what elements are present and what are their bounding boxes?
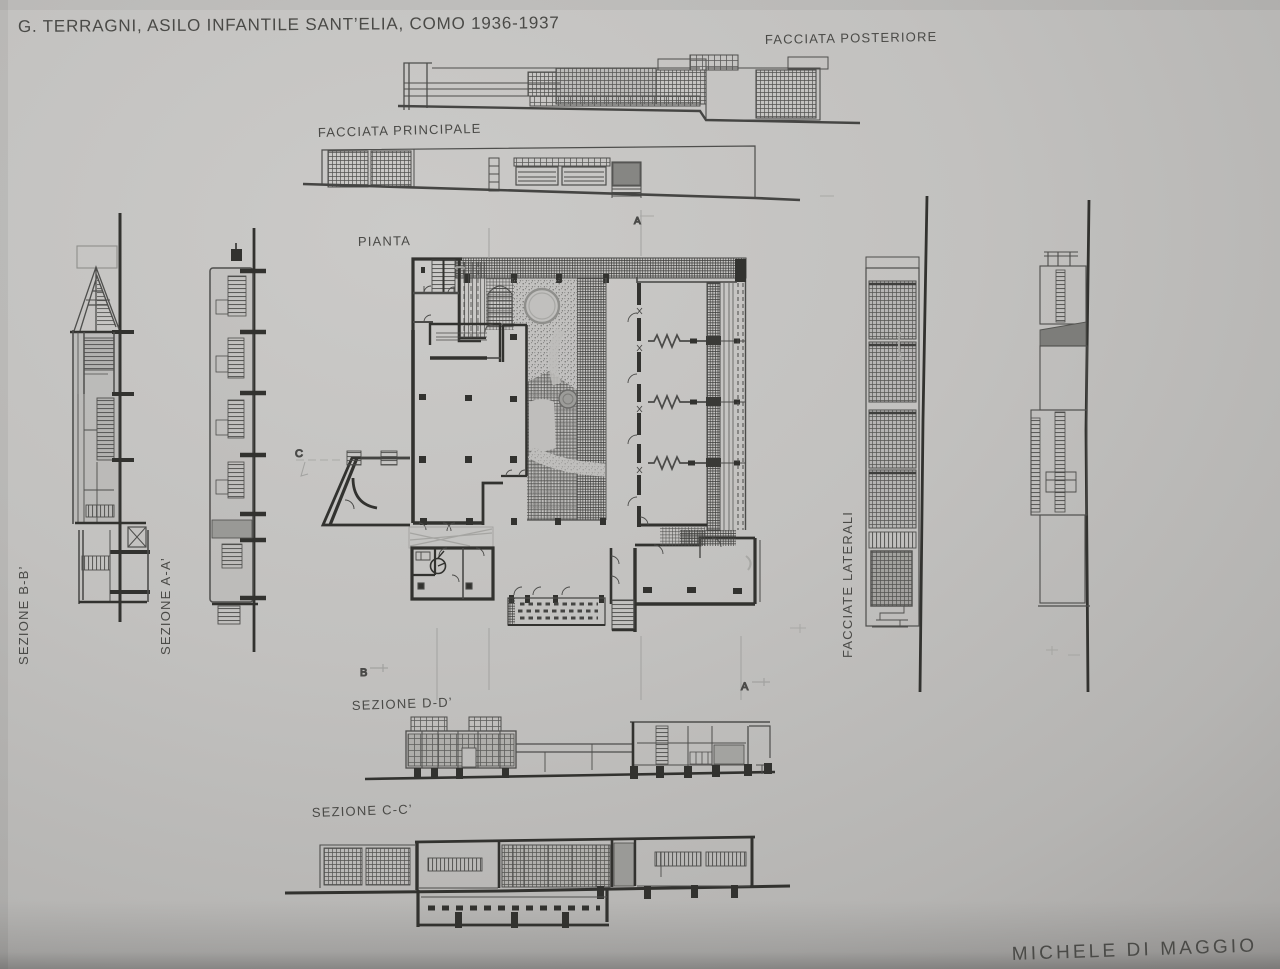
svg-text:A: A xyxy=(741,681,749,693)
svg-text:G. TERRAGNI, ASILO INFANTILE S: G. TERRAGNI, ASILO INFANTILE SANT’ELIA, … xyxy=(18,13,560,36)
svg-text:PIANTA: PIANTA xyxy=(358,233,411,249)
svg-text:SEZIONE A-A’: SEZIONE A-A’ xyxy=(158,557,173,655)
svg-text:FACCIATA POSTERIORE: FACCIATA POSTERIORE xyxy=(765,29,938,47)
svg-text:B: B xyxy=(360,667,367,679)
svg-text:A: A xyxy=(634,216,641,227)
svg-text:FACCIATE LATERALI: FACCIATE LATERALI xyxy=(840,511,855,658)
svg-text:SEZIONE B-B’: SEZIONE B-B’ xyxy=(16,565,31,665)
svg-text:C: C xyxy=(295,448,303,460)
